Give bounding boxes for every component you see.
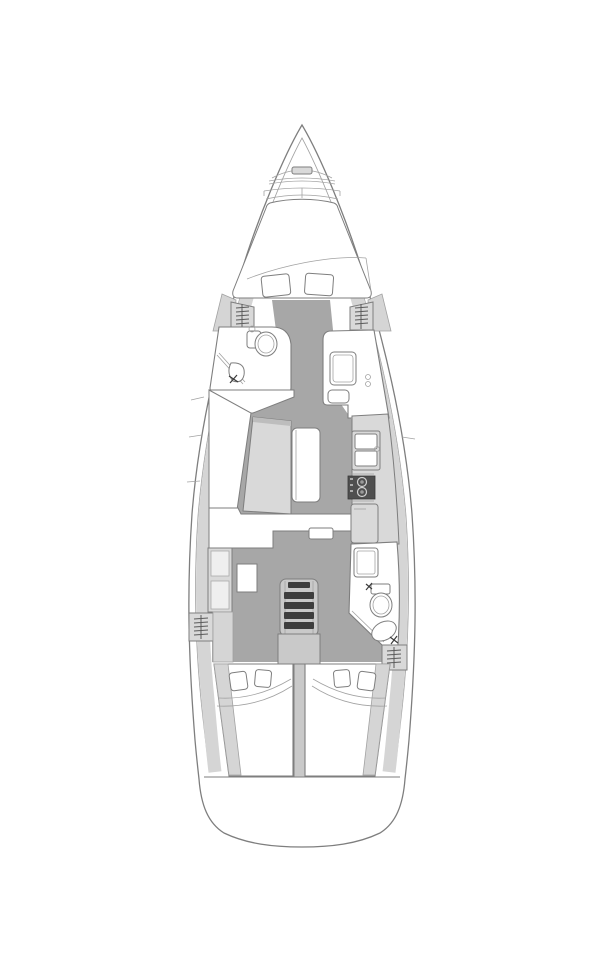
aft-port-pillow-2 — [254, 669, 271, 687]
shower-stall-icon — [330, 352, 356, 385]
aft-toilet-tank — [371, 584, 390, 594]
bow-anchor-windlass-icon — [292, 167, 312, 174]
step-tread-4 — [284, 612, 314, 619]
forward-cabin — [233, 195, 372, 298]
berth-pillow-left — [261, 274, 291, 298]
galley-sink-basin-2 — [355, 451, 377, 466]
aft-starboard-pillow-2 — [357, 671, 376, 691]
step-tread-3 — [284, 602, 314, 609]
port-aft-locker-block — [213, 612, 233, 662]
v-berth-double-bed-icon — [233, 199, 372, 298]
companionway-sill — [309, 528, 333, 539]
side-deck-tick-1 — [191, 397, 204, 400]
yacht-layout-diagram — [0, 0, 604, 960]
nav-seat — [237, 564, 257, 592]
aft-head-shower-icon — [354, 548, 378, 577]
yacht-floorplan-canvas — [0, 0, 604, 960]
galley-fridge-icon — [351, 504, 378, 543]
engine-compartment-divider — [294, 664, 306, 777]
companionway-pedestal — [278, 634, 320, 664]
step-tread-5 — [284, 622, 314, 629]
step-tread-2 — [284, 592, 314, 599]
shower-seat — [328, 390, 349, 403]
aft-starboard-pillow-1 — [333, 669, 350, 687]
forward-head — [210, 326, 291, 393]
galley-sink-basin-1 — [355, 434, 377, 449]
stove-burner-2-center — [360, 490, 364, 494]
aft-port-pillow-1 — [229, 671, 248, 691]
berth-pillow-right — [304, 273, 333, 296]
nav-cabinet-door-2 — [211, 581, 229, 609]
forward-head-sink-icon — [229, 363, 244, 382]
nav-cabinet-door-1 — [211, 551, 229, 576]
side-deck-tick-4 — [402, 437, 415, 439]
side-deck-tick-2 — [189, 435, 202, 437]
step-tread-1 — [288, 582, 310, 588]
stove-burner-1-center — [360, 480, 364, 484]
